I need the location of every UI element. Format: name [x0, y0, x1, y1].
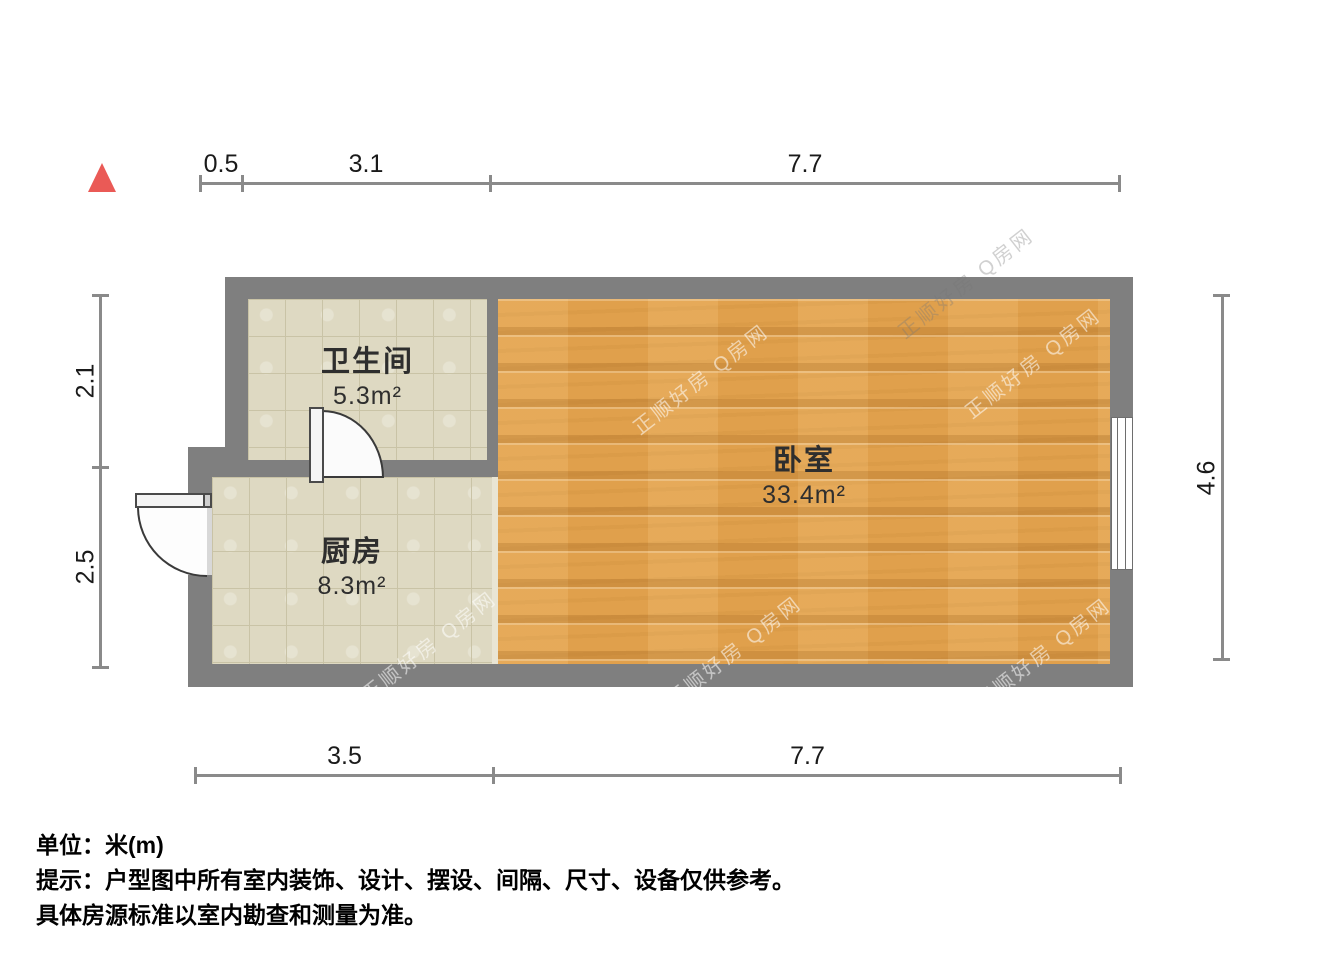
- bathroom-door-leaf: [309, 407, 324, 483]
- tip-note-line1: 提示：户型图中所有室内装饰、设计、摆设、间隔、尺寸、设备仅供参考。: [36, 861, 795, 895]
- unit-note: 单位：米(m): [36, 826, 164, 860]
- dimension-tick: [92, 294, 109, 297]
- bedroom-name: 卧室: [498, 444, 1110, 478]
- tip-note-line2: 具体房源标准以室内勘查和测量为准。: [36, 896, 427, 930]
- dimension-tick: [194, 767, 197, 784]
- dimension-tick: [1119, 767, 1122, 784]
- bedroom-label: 卧室 33.4m²: [498, 444, 1110, 512]
- bathroom-label: 卫生间 5.3m²: [248, 345, 487, 413]
- dimension-tick: [489, 175, 492, 192]
- dimension-tick: [92, 466, 109, 469]
- dim-top-0.5: 0.5: [197, 152, 245, 177]
- kitchen-name: 厨房: [212, 535, 492, 569]
- dimension-tick: [1213, 658, 1230, 661]
- dimension-tick: [92, 666, 109, 669]
- entry-door-hinge-block: [203, 493, 212, 508]
- wall-bottom: [188, 664, 1133, 687]
- bedroom-window: [1111, 417, 1133, 570]
- dim-top-3.1: 3.1: [243, 152, 489, 177]
- dim-left-2.1: 2.1: [72, 364, 101, 399]
- bathroom-name: 卫生间: [248, 345, 487, 379]
- dim-bottom-3.5: 3.5: [195, 744, 494, 769]
- dimension-tick: [1118, 175, 1121, 192]
- dimension-line-left: [99, 295, 102, 668]
- dim-bottom-7.7: 7.7: [494, 744, 1121, 769]
- wall-top: [225, 277, 1133, 299]
- kitchen-label: 厨房 8.3m²: [212, 535, 492, 603]
- dim-top-7.7: 7.7: [490, 152, 1120, 177]
- dimension-line-top: [200, 182, 1121, 185]
- bedroom-area: 33.4m²: [498, 478, 1110, 512]
- entry-door-leaf: [135, 493, 205, 508]
- bathroom-area: 5.3m²: [248, 379, 487, 413]
- dimension-tick: [199, 175, 202, 192]
- floorplan-page: 0.5 3.1 7.7 3.5 7.7 2.1 2.5 4.6 卫生间 5.3m…: [0, 0, 1322, 964]
- dimension-tick: [241, 175, 244, 192]
- dimension-tick: [1213, 294, 1230, 297]
- dim-right-4.6: 4.6: [1193, 461, 1222, 496]
- dimension-line-bottom: [195, 774, 1122, 777]
- north-arrow-icon: [88, 163, 116, 192]
- entry-door-swing-arc: [137, 507, 207, 577]
- kitchen-area: 8.3m²: [212, 569, 492, 603]
- dim-left-2.5: 2.5: [72, 550, 101, 585]
- wall-bathroom-bedroom-partition: [487, 277, 498, 477]
- dimension-tick: [492, 767, 495, 784]
